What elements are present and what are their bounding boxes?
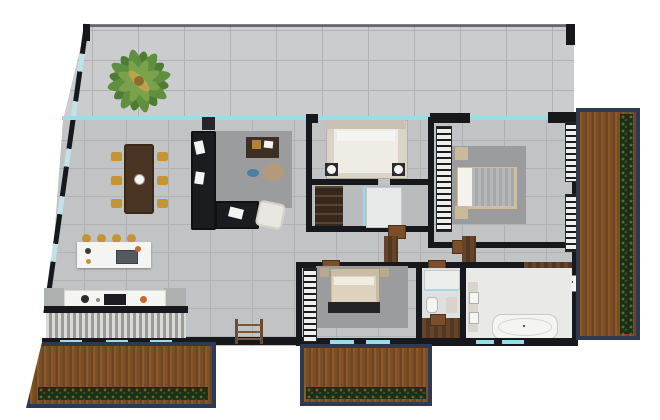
top-right-pillar <box>566 24 575 45</box>
dining-chair <box>111 199 122 208</box>
desk-paper <box>264 141 274 149</box>
shower-icon <box>366 187 402 228</box>
bathtub-inner <box>498 318 552 336</box>
nightstand <box>455 206 468 219</box>
glass-wall-pillar-b <box>430 113 470 123</box>
bed3-bench <box>328 302 380 313</box>
tv-unit <box>202 117 215 130</box>
island-sink <box>116 250 138 264</box>
window-icon <box>502 340 524 344</box>
corridor-wood-threshold <box>384 236 398 262</box>
bed3-pillows <box>334 277 374 285</box>
small-bath-vanity <box>446 297 457 313</box>
desk-gold-box <box>252 140 261 149</box>
window-icon <box>476 340 494 344</box>
wardrobe-icon <box>436 126 452 232</box>
bed2-mattress <box>472 168 514 206</box>
toilet-icon <box>426 297 438 313</box>
door-icon <box>430 314 446 326</box>
bed1-pillows <box>337 131 395 141</box>
bedside-lamp <box>327 165 336 174</box>
dining-chair <box>157 176 168 185</box>
kitchen-south-wall <box>44 306 188 313</box>
corridor-wood-threshold <box>462 236 476 262</box>
cooktop-icon <box>104 294 126 305</box>
vanity-sink <box>469 292 479 304</box>
bathtub-drain <box>523 325 525 327</box>
console-desk <box>246 137 279 158</box>
dining-chair <box>157 152 168 161</box>
palm-tree-icon <box>88 28 190 130</box>
bed2-pillows <box>458 168 472 206</box>
kitchen-cabinet-left <box>44 288 64 308</box>
dining-chair <box>111 152 122 161</box>
top-edge-wall <box>86 24 574 27</box>
armchair-white <box>255 199 287 230</box>
nightstand <box>455 147 468 160</box>
dining-chair <box>157 199 168 208</box>
island-bowl-gold <box>86 259 91 264</box>
deck-right <box>576 108 640 340</box>
island-bowl-dark <box>85 248 91 254</box>
planter-icon <box>306 387 426 399</box>
planter-icon <box>620 114 633 334</box>
shower-icon <box>424 270 460 290</box>
shower-glass <box>363 187 365 226</box>
counter-bowl-orange <box>140 296 147 303</box>
island-bowl-orange <box>135 246 141 252</box>
table-centerpiece <box>134 174 145 185</box>
louver-skylight <box>46 313 186 339</box>
nightstand <box>380 268 389 277</box>
wardrobe-icon <box>315 186 343 226</box>
bedside-lamp <box>394 165 403 174</box>
ladder-bench <box>235 319 263 344</box>
bath-vanity <box>468 282 478 332</box>
balcony-left <box>26 342 216 408</box>
bed1-headboard <box>326 120 406 129</box>
dining-chair <box>111 176 122 185</box>
bedroom3-left-wall <box>296 262 302 346</box>
balcony-middle <box>300 344 432 406</box>
planter-icon <box>38 387 208 400</box>
wardrobe-icon <box>303 268 317 342</box>
blue-decor <box>247 169 259 177</box>
shower-glass <box>424 289 458 291</box>
bedroom2-south-wall <box>428 242 578 248</box>
floor-plan-canvas <box>0 0 660 420</box>
counter-sink <box>81 295 89 303</box>
counter-dot <box>96 298 100 302</box>
vanity-sink <box>469 312 479 324</box>
sofa-pillow <box>194 171 205 184</box>
kitchen-cabinet-right <box>164 288 186 308</box>
nightstand <box>320 268 329 277</box>
